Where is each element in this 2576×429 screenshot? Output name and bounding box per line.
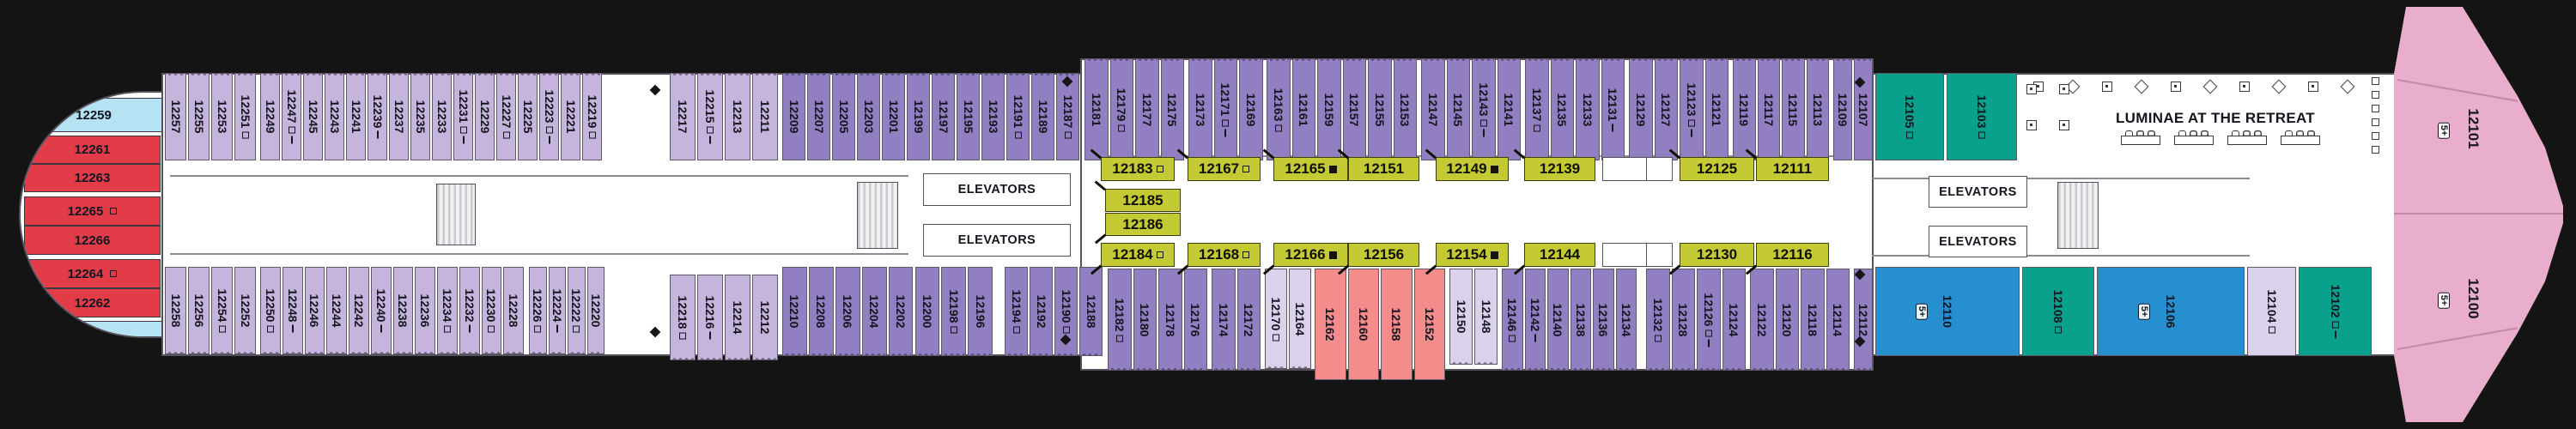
cabin-number: 12149 bbox=[1446, 160, 1486, 178]
cabin-number: 12216 bbox=[703, 296, 717, 329]
sofa-square-icon bbox=[444, 325, 451, 332]
cabin-number: 12139 bbox=[1540, 160, 1580, 178]
cabin-number: 12237 bbox=[392, 100, 406, 134]
cabin-12136[interactable]: 12136 bbox=[1593, 269, 1614, 371]
cabin-number: 12234 bbox=[440, 289, 454, 323]
dining-table-icon bbox=[2102, 82, 2112, 92]
cabin-number: 12199 bbox=[912, 100, 926, 134]
cabin-12113[interactable]: 12113 bbox=[1807, 58, 1830, 160]
cabin-number: 12113 bbox=[1811, 93, 1825, 125]
chair-icon bbox=[2372, 77, 2379, 85]
cabin-12215[interactable]: 12215 bbox=[697, 73, 723, 160]
connecting-tick-icon bbox=[462, 136, 465, 143]
restaurant-label: LUMINAE AT THE RETREAT bbox=[2078, 107, 2353, 130]
cabin-12217[interactable]: 12217 bbox=[670, 73, 696, 160]
cabin-12234[interactable]: 12234 bbox=[437, 267, 458, 354]
cabin-number: 12198 bbox=[947, 290, 961, 323]
cabin-12174[interactable]: 12174 bbox=[1212, 269, 1236, 371]
cabin-12195[interactable]: 12195 bbox=[957, 73, 980, 160]
cabin-12112[interactable]: 12112 bbox=[1854, 269, 1873, 371]
cabin-12137[interactable]: 12137 bbox=[1525, 58, 1549, 160]
cabin-12120[interactable]: 12120 bbox=[1776, 269, 1800, 371]
sofa-square-icon bbox=[534, 325, 541, 332]
capacity-badge: 5+ bbox=[2438, 293, 2450, 309]
cabin-12102[interactable]: 12102 bbox=[2299, 267, 2372, 356]
cabin-12222[interactable]: 12222 bbox=[568, 267, 586, 354]
cabin-12226[interactable]: 12226 bbox=[529, 267, 547, 354]
cabin-number: 12115 bbox=[1786, 93, 1800, 125]
cabin-12219[interactable]: 12219 bbox=[582, 73, 602, 160]
cabin-12159[interactable]: 12159 bbox=[1317, 58, 1341, 160]
cabin-number: 12264 bbox=[68, 267, 104, 281]
sofa-square-icon bbox=[1015, 131, 1022, 138]
cabin-number: 12204 bbox=[867, 295, 881, 329]
cabin-number: 12211 bbox=[758, 100, 772, 133]
banquette-seat-icon bbox=[2227, 136, 2267, 145]
cabin-12197[interactable]: 12197 bbox=[932, 73, 955, 160]
cabin-12181[interactable]: 12181 bbox=[1084, 58, 1109, 160]
cabin-number: 12124 bbox=[1727, 303, 1741, 336]
cabin-12204[interactable]: 12204 bbox=[862, 267, 887, 356]
cabin-12194[interactable]: 12194 bbox=[1005, 267, 1028, 356]
cabin-12259[interactable]: 12259 bbox=[24, 98, 163, 132]
cabin-12262[interactable]: 12262 bbox=[24, 288, 161, 317]
cabin-12231[interactable]: 12231 bbox=[453, 73, 473, 160]
connecting-tick-icon bbox=[556, 324, 558, 332]
cabin-number: 12186 bbox=[1122, 216, 1163, 233]
cabin-number: 12236 bbox=[418, 294, 432, 328]
cabin-number: 12202 bbox=[894, 295, 908, 329]
cabin-number: 12212 bbox=[758, 301, 772, 335]
cabin-number: 12126 bbox=[1702, 293, 1716, 326]
cabin-12109[interactable]: 12109 bbox=[1833, 58, 1852, 160]
cabin-12141[interactable]: 12141 bbox=[1498, 58, 1522, 160]
cabin-12205[interactable]: 12205 bbox=[832, 73, 855, 160]
cabin-number: 12223 bbox=[543, 90, 556, 124]
cabin-12124[interactable]: 12124 bbox=[1722, 269, 1747, 371]
cabin-12105[interactable]: 12105 bbox=[1875, 73, 1944, 160]
connecting-tick-icon bbox=[1534, 334, 1536, 341]
cabin-12127[interactable]: 12127 bbox=[1655, 58, 1679, 160]
cabin-12182[interactable]: 12182 bbox=[1108, 269, 1132, 371]
cabin-12101[interactable]: 12101 bbox=[2461, 90, 2485, 167]
cabin-12238[interactable]: 12238 bbox=[393, 267, 414, 354]
cabin-12199[interactable]: 12199 bbox=[907, 73, 930, 160]
cabin-12154[interactable]: 12154 bbox=[1436, 243, 1509, 267]
cabin-number: 12229 bbox=[478, 100, 492, 134]
cabin-12178[interactable]: 12178 bbox=[1158, 269, 1182, 371]
cabin-12115[interactable]: 12115 bbox=[1782, 58, 1805, 160]
cabin-number: 12247 bbox=[285, 90, 299, 124]
cabin-12225[interactable]: 12225 bbox=[518, 73, 538, 160]
cabin-12100[interactable]: 12100 bbox=[2461, 260, 2485, 337]
cabin-12160[interactable]: 12160 bbox=[1348, 269, 1380, 380]
bow-wing-line-bottom bbox=[2397, 327, 2518, 350]
chair-icon bbox=[2372, 105, 2379, 112]
connecting-tick-icon bbox=[1690, 129, 1692, 136]
cabin-12233[interactable]: 12233 bbox=[432, 73, 452, 160]
connecting-tick-icon bbox=[548, 136, 550, 143]
cabin-12232[interactable]: 12232 bbox=[459, 267, 480, 354]
cabin-12138[interactable]: 12138 bbox=[1571, 269, 1592, 371]
elevators-box: ELEVATORS bbox=[923, 224, 1071, 257]
cabin-number: 12213 bbox=[731, 100, 744, 134]
cabin-12176[interactable]: 12176 bbox=[1184, 269, 1208, 371]
capacity-badge: 5+ bbox=[1916, 304, 1928, 320]
cabin-number: 12189 bbox=[1036, 100, 1050, 134]
cabin-12150[interactable]: 12150 bbox=[1449, 269, 1473, 365]
cabin-number: 12181 bbox=[1090, 93, 1103, 126]
cabin-number: 12106 bbox=[2164, 295, 2178, 329]
cabin-12158[interactable]: 12158 bbox=[1381, 269, 1413, 380]
cabin-12254[interactable]: 12254 bbox=[211, 267, 233, 354]
cabin-12261[interactable]: 12261 bbox=[24, 136, 161, 164]
cabin-12213[interactable]: 12213 bbox=[725, 73, 750, 160]
cabin-12264[interactable]: 12264 bbox=[24, 259, 161, 288]
cabin-number: 12175 bbox=[1165, 93, 1179, 126]
cabin-number: 12265 bbox=[68, 204, 104, 219]
cabin-12218[interactable]: 12218 bbox=[670, 275, 696, 360]
cabin-12121[interactable]: 12121 bbox=[1705, 58, 1729, 160]
cabin-number: 12182 bbox=[1113, 298, 1127, 331]
cabin-12134[interactable]: 12134 bbox=[1616, 269, 1637, 371]
elevators-label: ELEVATORS bbox=[958, 183, 1036, 196]
cabin-12142[interactable]: 12142 bbox=[1525, 269, 1546, 371]
cabin-number: 12241 bbox=[349, 100, 363, 134]
cabin-12163[interactable]: 12163 bbox=[1267, 58, 1291, 160]
cabin-12203[interactable]: 12203 bbox=[857, 73, 880, 160]
cabin-12153[interactable]: 12153 bbox=[1394, 58, 1418, 160]
cabin-number: 12238 bbox=[396, 294, 410, 328]
cabin-number: 12134 bbox=[1619, 303, 1633, 336]
cabin-number: 12183 bbox=[1112, 160, 1152, 178]
chair-icon bbox=[2372, 91, 2379, 99]
cabin-12175[interactable]: 12175 bbox=[1161, 58, 1185, 160]
cabin-12177[interactable]: 12177 bbox=[1135, 58, 1159, 160]
cabin-number: 12207 bbox=[812, 100, 826, 134]
banquette-seat-icon bbox=[2174, 136, 2214, 145]
cabin-12246[interactable]: 12246 bbox=[305, 267, 325, 354]
cabin-number: 12140 bbox=[1551, 303, 1564, 336]
cabin-number: 12161 bbox=[1297, 93, 1310, 126]
cabin-12228[interactable]: 12228 bbox=[503, 267, 524, 354]
cabin-number: 12116 bbox=[1772, 246, 1812, 263]
cabin-12227[interactable]: 12227 bbox=[496, 73, 516, 160]
cabin-12110[interactable]: 121105+ bbox=[1875, 267, 2020, 356]
cabin-12144[interactable]: 12144 bbox=[1524, 243, 1595, 267]
cabin-number: 12230 bbox=[484, 289, 498, 323]
cabin-12245[interactable]: 12245 bbox=[303, 73, 323, 160]
cabin-12148[interactable]: 12148 bbox=[1474, 269, 1498, 365]
cabin-number: 12226 bbox=[531, 289, 544, 323]
cabin-number: 12155 bbox=[1373, 93, 1387, 126]
sofa-square-icon bbox=[589, 131, 596, 138]
cabin-12155[interactable]: 12155 bbox=[1368, 58, 1392, 160]
cabin-12180[interactable]: 12180 bbox=[1133, 269, 1157, 371]
cabin-12132[interactable]: 12132 bbox=[1646, 269, 1670, 371]
cabin-12106[interactable]: 121065+ bbox=[2097, 267, 2245, 356]
cabin-12257[interactable]: 12257 bbox=[165, 73, 186, 160]
cabin-12265[interactable]: 12265 bbox=[24, 196, 161, 226]
cabin-number: 12129 bbox=[1634, 93, 1648, 126]
cabin-12191[interactable]: 12191 bbox=[1006, 73, 1030, 160]
cabin-12248[interactable]: 12248 bbox=[283, 267, 303, 354]
cabin-12164[interactable]: 12164 bbox=[1289, 269, 1311, 369]
cabin-12212[interactable]: 12212 bbox=[752, 275, 778, 360]
cabin-12236[interactable]: 12236 bbox=[415, 267, 435, 354]
cabin-12156[interactable]: 12156 bbox=[1348, 243, 1419, 267]
cabin-12251[interactable]: 12251 bbox=[234, 73, 256, 160]
cabin-12172[interactable]: 12172 bbox=[1237, 269, 1261, 371]
cabin-number: 12228 bbox=[507, 294, 520, 328]
cabin-number: 12233 bbox=[435, 100, 449, 134]
cabin-number: 12179 bbox=[1115, 88, 1128, 121]
cabin-12139[interactable]: 12139 bbox=[1524, 157, 1595, 181]
cabin-12208[interactable]: 12208 bbox=[809, 267, 834, 356]
cabin-12253[interactable]: 12253 bbox=[211, 73, 233, 160]
sofa-square-icon bbox=[1705, 329, 1712, 336]
cabin-12202[interactable]: 12202 bbox=[889, 267, 914, 356]
cabin-number: 12173 bbox=[1194, 93, 1207, 126]
cabin-12184[interactable]: 12184 bbox=[1101, 243, 1175, 267]
cabin-12223[interactable]: 12223 bbox=[539, 73, 559, 160]
sofa-square-icon bbox=[242, 131, 249, 138]
cabin-number: 12141 bbox=[1502, 93, 1516, 126]
cabin-12237[interactable]: 12237 bbox=[389, 73, 409, 160]
cabin-12119[interactable]: 12119 bbox=[1733, 58, 1756, 160]
cabin-12192[interactable]: 12192 bbox=[1030, 267, 1053, 356]
cabin-12131[interactable]: 12131 bbox=[1601, 58, 1625, 160]
cabin-12165[interactable]: 12165 bbox=[1273, 157, 1348, 181]
cabin-12125[interactable]: 12125 bbox=[1680, 157, 1754, 181]
cabin-number: 12125 bbox=[1697, 160, 1737, 178]
cabin-12210[interactable]: 12210 bbox=[782, 267, 807, 356]
cabin-number: 12208 bbox=[814, 295, 828, 329]
cabin-12216[interactable]: 12216 bbox=[697, 275, 723, 360]
cabin-12135[interactable]: 12135 bbox=[1551, 58, 1575, 160]
cabin-number: 12250 bbox=[264, 289, 277, 323]
cabin-12206[interactable]: 12206 bbox=[835, 267, 860, 356]
cabin-12140[interactable]: 12140 bbox=[1547, 269, 1569, 371]
cabin-12235[interactable]: 12235 bbox=[410, 73, 430, 160]
cabin-12250[interactable]: 12250 bbox=[260, 267, 281, 354]
cabin-12242[interactable]: 12242 bbox=[349, 267, 369, 354]
dining-table-icon bbox=[2308, 82, 2318, 92]
sofa-square-icon bbox=[2269, 326, 2275, 333]
cabin-12122[interactable]: 12122 bbox=[1750, 269, 1774, 371]
cabin-number: 12203 bbox=[862, 100, 876, 134]
cabin-number: 12118 bbox=[1806, 303, 1820, 335]
cabin-number: 12251 bbox=[239, 95, 252, 129]
cabin-12162[interactable]: 12162 bbox=[1315, 269, 1346, 380]
sofa-square-icon bbox=[1655, 335, 1662, 341]
sofa-square-icon bbox=[707, 126, 714, 133]
sofa-square-icon bbox=[1222, 119, 1229, 126]
sofa-square-icon bbox=[1116, 335, 1123, 341]
cabin-12263[interactable]: 12263 bbox=[24, 164, 161, 192]
cabin-12146[interactable]: 12146 bbox=[1502, 269, 1523, 371]
sofa-square-icon bbox=[573, 325, 580, 332]
cabin-number: 12196 bbox=[974, 295, 987, 329]
cabin-number: 12258 bbox=[169, 294, 183, 328]
cabin-12107[interactable]: 12107 bbox=[1854, 58, 1873, 160]
cabin-12220[interactable]: 12220 bbox=[587, 267, 605, 354]
cabin-number: 12160 bbox=[1357, 308, 1370, 341]
cabin-number: 12158 bbox=[1389, 308, 1403, 341]
cabin-12168[interactable]: 12168 bbox=[1188, 243, 1261, 267]
cabin-12103[interactable]: 12103 bbox=[1947, 73, 2017, 160]
cabin-12186[interactable]: 12186 bbox=[1105, 213, 1181, 236]
cabin-12170[interactable]: 12170 bbox=[1265, 269, 1287, 369]
sofa-square-icon bbox=[1063, 326, 1070, 333]
cabin-12117[interactable]: 12117 bbox=[1758, 58, 1781, 160]
cabin-12130[interactable]: 12130 bbox=[1680, 243, 1754, 267]
cabin-12152[interactable]: 12152 bbox=[1414, 269, 1446, 380]
cabin-12207[interactable]: 12207 bbox=[807, 73, 830, 160]
cabin-12229[interactable]: 12229 bbox=[475, 73, 495, 160]
cabin-12241[interactable]: 12241 bbox=[346, 73, 366, 160]
corridor-wall bbox=[170, 253, 908, 255]
capacity-badge: 5+ bbox=[2438, 123, 2450, 139]
cabin-12169[interactable]: 12169 bbox=[1239, 58, 1263, 160]
cabin-12179[interactable]: 12179 bbox=[1110, 58, 1134, 160]
cabin-number: 12119 bbox=[1737, 93, 1751, 125]
cabin-12128[interactable]: 12128 bbox=[1672, 269, 1696, 371]
elevators-box: ELEVATORS bbox=[1929, 226, 2027, 257]
sofa-square-icon bbox=[1242, 251, 1249, 258]
cabin-number: 12232 bbox=[463, 289, 477, 323]
cabin-12221[interactable]: 12221 bbox=[561, 73, 580, 160]
cabin-number: 12133 bbox=[1581, 93, 1595, 126]
cabin-number: 12120 bbox=[1780, 303, 1794, 336]
connecting-tick-icon bbox=[468, 324, 471, 332]
sofa-square-icon bbox=[951, 326, 957, 333]
cabin-12243[interactable]: 12243 bbox=[325, 73, 344, 160]
cabin-12214[interactable]: 12214 bbox=[725, 275, 750, 360]
cabin-number: 12253 bbox=[216, 100, 229, 134]
cabin-12260[interactable]: 12260 bbox=[24, 321, 163, 338]
cabin-12258[interactable]: 12258 bbox=[165, 267, 186, 354]
cabin-12151[interactable]: 12151 bbox=[1348, 157, 1419, 181]
cabin-12149[interactable]: 12149 bbox=[1436, 157, 1509, 181]
cabin-12183[interactable]: 12183 bbox=[1101, 157, 1175, 181]
cabin-12167[interactable]: 12167 bbox=[1188, 157, 1261, 181]
cabin-12118[interactable]: 12118 bbox=[1801, 269, 1825, 371]
sofa-square-icon bbox=[1688, 119, 1695, 126]
cabin-number: 12184 bbox=[1112, 246, 1152, 263]
cabin-number: 12152 bbox=[1423, 308, 1437, 341]
cabin-number: 12231 bbox=[457, 90, 471, 124]
cabin-number: 12261 bbox=[75, 142, 111, 157]
cabin-12255[interactable]: 12255 bbox=[188, 73, 210, 160]
cabin-number: 12219 bbox=[586, 95, 599, 129]
cabin-12224[interactable]: 12224 bbox=[549, 267, 567, 354]
cabin-number: 12225 bbox=[521, 100, 535, 134]
cabin-12249[interactable]: 12249 bbox=[260, 73, 280, 160]
cabin-number: 12215 bbox=[703, 90, 717, 124]
cabin-12266[interactable]: 12266 bbox=[24, 226, 161, 255]
cabin-12166[interactable]: 12166 bbox=[1273, 243, 1348, 267]
cabin-number: 12127 bbox=[1659, 93, 1673, 126]
deck-plan: 1225912261122631226512266122641226212260… bbox=[0, 0, 2576, 429]
cabin-number: 12159 bbox=[1322, 93, 1336, 126]
sofa-square-icon bbox=[1013, 326, 1020, 333]
cabin-number: 12144 bbox=[1540, 246, 1580, 263]
cabin-12108[interactable]: 12108 bbox=[2022, 267, 2094, 356]
cabin-number: 12200 bbox=[920, 295, 934, 329]
cabin-12111[interactable]: 12111 bbox=[1756, 157, 1829, 181]
cabin-number: 12131 bbox=[1606, 88, 1619, 121]
cabin-12129[interactable]: 12129 bbox=[1629, 58, 1653, 160]
cabin-12157[interactable]: 12157 bbox=[1343, 58, 1367, 160]
cabin-12198[interactable]: 12198 bbox=[941, 267, 966, 356]
cabin-12143[interactable]: 12143 bbox=[1472, 58, 1496, 160]
cabin-12252[interactable]: 12252 bbox=[234, 267, 256, 354]
cabin-number: 12172 bbox=[1242, 303, 1255, 336]
sofa-square-icon bbox=[1509, 335, 1516, 341]
cabin-12114[interactable]: 12114 bbox=[1826, 269, 1850, 371]
cabin-number: 12138 bbox=[1574, 303, 1588, 336]
cabin-12239[interactable]: 12239 bbox=[368, 73, 387, 160]
cabin-number: 12177 bbox=[1140, 93, 1154, 126]
cabin-12209[interactable]: 12209 bbox=[782, 73, 805, 160]
cabin-number: 12256 bbox=[192, 294, 206, 328]
cabin-number: 12103 bbox=[1975, 95, 1989, 129]
cabin-12256[interactable]: 12256 bbox=[188, 267, 210, 354]
cabin-number: 12242 bbox=[352, 294, 366, 328]
sofa-square-icon bbox=[460, 126, 467, 133]
cabin-12244[interactable]: 12244 bbox=[326, 267, 347, 354]
utility-room bbox=[1602, 157, 1673, 181]
cabin-12104[interactable]: 12104 bbox=[2247, 267, 2296, 356]
cabin-number: 12111 bbox=[1773, 160, 1812, 178]
cabin-12185[interactable]: 12185 bbox=[1105, 189, 1181, 212]
cabin-12116[interactable]: 12116 bbox=[1756, 243, 1829, 267]
sofa-square-icon bbox=[1242, 166, 1249, 172]
cabin-number: 12180 bbox=[1138, 303, 1151, 336]
cabin-12145[interactable]: 12145 bbox=[1447, 58, 1471, 160]
cabin-12188[interactable]: 12188 bbox=[1079, 267, 1103, 356]
cabin-number: 12178 bbox=[1163, 303, 1177, 336]
cabin-12196[interactable]: 12196 bbox=[968, 267, 993, 356]
cabin-number: 12217 bbox=[676, 100, 690, 134]
cabin-number: 12197 bbox=[937, 100, 951, 134]
cabin-12240[interactable]: 12240 bbox=[371, 267, 392, 354]
cabin-12193[interactable]: 12193 bbox=[981, 73, 1005, 160]
cabin-12123[interactable]: 12123 bbox=[1680, 58, 1704, 160]
elevators-label: ELEVATORS bbox=[958, 233, 1036, 247]
cabin-12147[interactable]: 12147 bbox=[1421, 58, 1445, 160]
cabin-12171[interactable]: 12171 bbox=[1214, 58, 1238, 160]
sofa-square-icon bbox=[289, 126, 295, 133]
connecting-tick-icon bbox=[376, 130, 379, 138]
cabin-number: 12143 bbox=[1477, 82, 1491, 116]
cabin-12247[interactable]: 12247 bbox=[282, 73, 301, 160]
cabin-number: 12136 bbox=[1596, 303, 1610, 336]
cabin-12211[interactable]: 12211 bbox=[752, 73, 778, 160]
cabin-12133[interactable]: 12133 bbox=[1576, 58, 1600, 160]
cabin-12201[interactable]: 12201 bbox=[882, 73, 905, 160]
cabin-12189[interactable]: 12189 bbox=[1031, 73, 1054, 160]
sofa-square-icon bbox=[546, 126, 553, 133]
cabin-number: 12165 bbox=[1285, 160, 1325, 178]
connecting-tick-icon bbox=[1707, 339, 1710, 347]
cabin-12173[interactable]: 12173 bbox=[1188, 58, 1212, 160]
cabin-12230[interactable]: 12230 bbox=[482, 267, 502, 354]
cabin-12126[interactable]: 12126 bbox=[1697, 269, 1721, 371]
cabin-12200[interactable]: 12200 bbox=[915, 267, 940, 356]
cabin-12161[interactable]: 12161 bbox=[1292, 58, 1316, 160]
